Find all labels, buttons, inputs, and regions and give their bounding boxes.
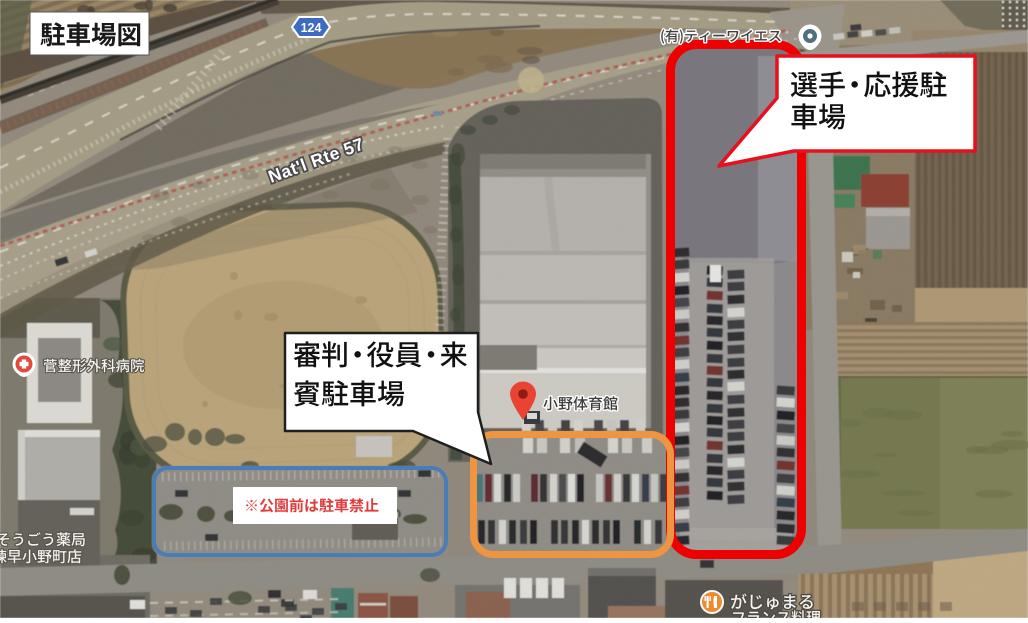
svg-text:124: 124 [301, 21, 322, 35]
